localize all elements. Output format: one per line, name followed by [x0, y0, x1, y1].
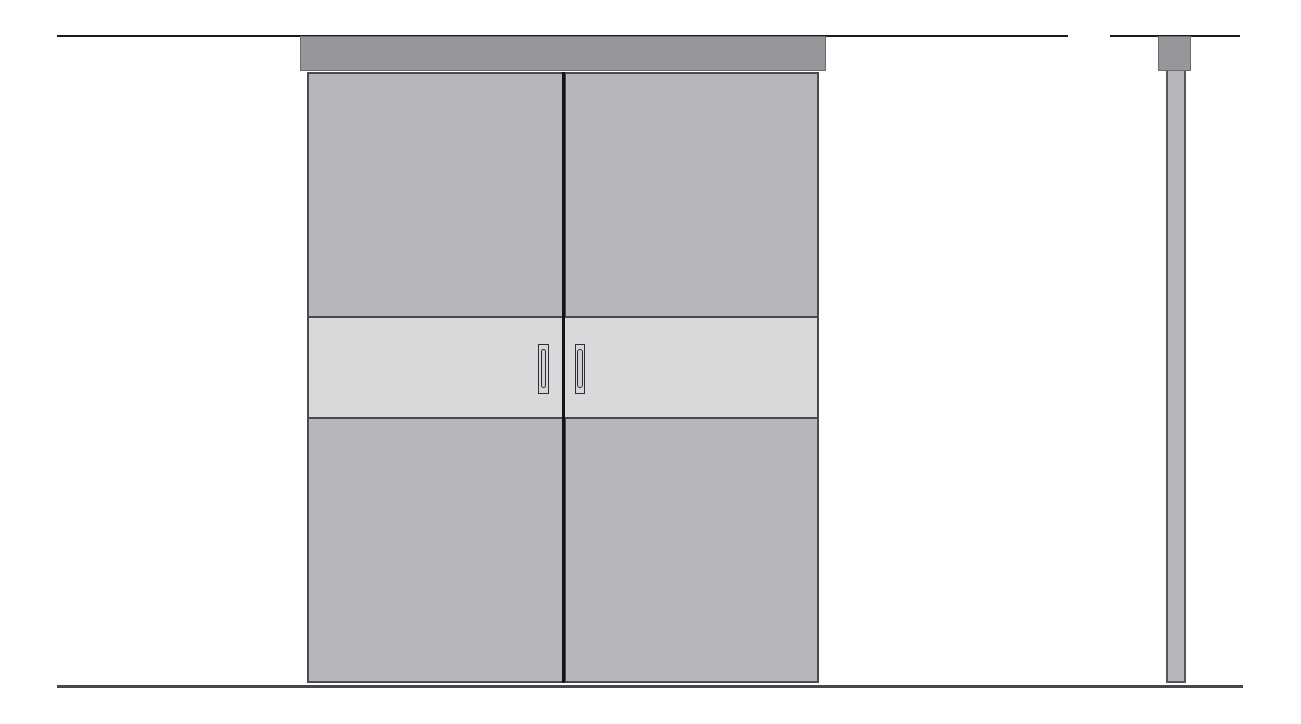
floor-line	[57, 685, 1243, 688]
right-handle-recess	[577, 349, 583, 388]
door-seam-divider	[562, 72, 565, 683]
drawing-canvas	[0, 0, 1301, 724]
side-track-header	[1158, 36, 1191, 71]
left-handle-recess	[541, 349, 547, 388]
side-door-panel	[1166, 71, 1187, 683]
door-track-header	[300, 36, 826, 71]
left-door-handle	[538, 344, 549, 394]
right-door-handle	[575, 344, 586, 394]
